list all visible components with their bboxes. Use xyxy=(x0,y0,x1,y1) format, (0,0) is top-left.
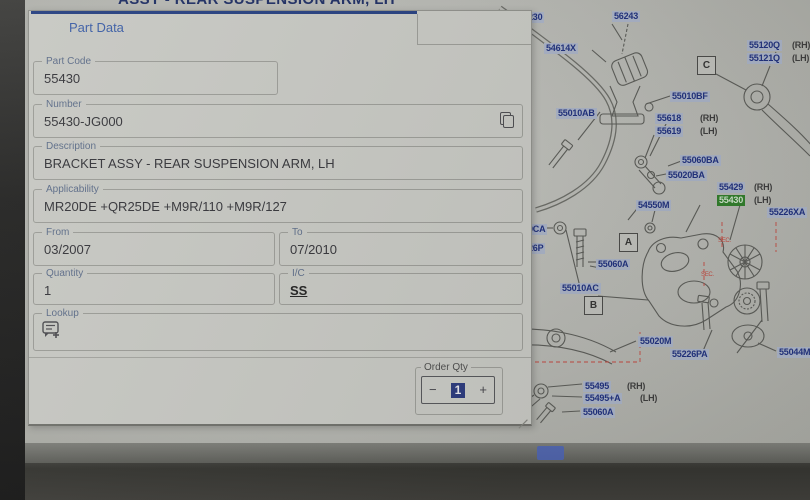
side-indicator: (RH) xyxy=(627,381,645,392)
from-value: 03/2007 xyxy=(44,242,91,257)
description-value: BRACKET ASSY - REAR SUSPENSION ARM, LH xyxy=(44,156,335,171)
qty-value-input[interactable]: 1 xyxy=(451,383,466,398)
part-label-55429[interactable]: 55429 xyxy=(717,182,745,193)
part-label-55020BA[interactable]: 55020BA xyxy=(666,170,707,181)
quantity-label: Quantity xyxy=(42,268,87,279)
part-label-55010AC[interactable]: 55010AC xyxy=(560,283,601,294)
part-label-55618[interactable]: 55618 xyxy=(655,113,683,124)
description-label: Description xyxy=(42,141,100,152)
part-label-55060A[interactable]: 55060A xyxy=(581,407,615,418)
part-label-55495[interactable]: 55495 xyxy=(583,381,611,392)
to-field: To 07/2010 xyxy=(279,232,523,266)
part-label-54614X[interactable]: 54614X xyxy=(544,43,578,54)
taskbar-item[interactable] xyxy=(537,446,564,460)
lookup-add-note-icon[interactable] xyxy=(42,321,62,339)
part-label-55010BF[interactable]: 55010BF xyxy=(670,91,710,102)
part-label-55121Q[interactable]: 55121Q xyxy=(747,53,782,64)
part-label-55226XA[interactable]: 55226XA xyxy=(767,207,807,218)
part-label-54550M[interactable]: 54550M xyxy=(636,200,671,211)
side-indicator: (RH) xyxy=(754,182,772,193)
dialog-resize-handle[interactable] xyxy=(516,409,528,421)
part-label-55060A[interactable]: 55060A xyxy=(596,259,630,270)
description-field: Description BRACKET ASSY - REAR SUSPENSI… xyxy=(33,146,523,180)
part-label-55044M[interactable]: 55044M xyxy=(777,347,810,358)
side-indicator: (RH) xyxy=(700,113,718,124)
ic-link[interactable]: SS xyxy=(290,283,307,298)
order-qty-group: Order Qty − 1 + xyxy=(415,367,503,415)
side-indicator: (LH) xyxy=(754,195,771,206)
applicability-label: Applicability xyxy=(42,184,103,195)
number-field: Number 55430-JG000 xyxy=(33,104,523,138)
part-label-55226PA[interactable]: 55226PA xyxy=(670,349,709,360)
side-indicator: (RH) xyxy=(792,40,810,51)
part-code-field: Part Code 55430 xyxy=(33,61,278,95)
part-label-55020M[interactable]: 55020M xyxy=(638,336,673,347)
ic-label: I/C xyxy=(288,268,309,279)
section-reference-note: SEC. xyxy=(718,238,731,244)
from-field: From 03/2007 xyxy=(33,232,275,266)
from-label: From xyxy=(42,227,73,238)
part-label-55120Q[interactable]: 55120Q xyxy=(747,40,782,51)
callout-box-B[interactable]: B xyxy=(584,296,603,315)
order-qty-stepper: − 1 + xyxy=(421,376,495,404)
part-code-label: Part Code xyxy=(42,56,95,67)
part-label-55060BA[interactable]: 55060BA xyxy=(680,155,721,166)
section-reference-note: SEC. xyxy=(701,272,714,278)
quantity-value: 1 xyxy=(44,283,51,298)
part-label-55010AB[interactable]: 55010AB xyxy=(556,108,597,119)
tab-border xyxy=(417,44,531,45)
part-label-55495+A[interactable]: 55495+A xyxy=(583,393,622,404)
lookup-field: Lookup xyxy=(33,313,523,351)
active-tab-indicator xyxy=(31,11,417,14)
taskbar xyxy=(25,443,810,463)
copy-icon[interactable] xyxy=(500,112,514,128)
dialog-divider xyxy=(29,357,531,358)
part-data-dialog: Part Data Part Code 55430 Number 55430-J… xyxy=(28,10,532,426)
monitor-bezel-left xyxy=(0,0,25,500)
callout-box-C[interactable]: C xyxy=(697,56,716,75)
part-label-55430[interactable]: 55430 xyxy=(717,195,745,206)
applicability-field: Applicability MR20DE +QR25DE +M9R/110 +M… xyxy=(33,189,523,223)
side-indicator: (LH) xyxy=(792,53,809,64)
callout-box-A[interactable]: A xyxy=(619,233,638,252)
order-qty-label: Order Qty xyxy=(421,362,471,373)
ic-field: I/C SS xyxy=(279,273,523,305)
qty-increase-button[interactable]: + xyxy=(479,383,487,397)
side-indicator: (LH) xyxy=(640,393,657,404)
side-indicator: (LH) xyxy=(700,126,717,137)
part-label-55619[interactable]: 55619 xyxy=(655,126,683,137)
part-code-value: 55430 xyxy=(44,71,80,86)
quantity-field: Quantity 1 xyxy=(33,273,275,305)
to-label: To xyxy=(288,227,307,238)
number-value: 55430-JG000 xyxy=(44,114,123,129)
lookup-label: Lookup xyxy=(42,308,83,319)
applicability-value: MR20DE +QR25DE +M9R/110 +M9R/127 xyxy=(44,199,287,214)
tab-part-data[interactable]: Part Data xyxy=(69,20,124,35)
qty-decrease-button[interactable]: − xyxy=(429,383,437,397)
to-value: 07/2010 xyxy=(290,242,337,257)
number-label: Number xyxy=(42,99,86,110)
tab-border xyxy=(417,14,418,44)
part-label-56243[interactable]: 56243 xyxy=(612,11,640,22)
